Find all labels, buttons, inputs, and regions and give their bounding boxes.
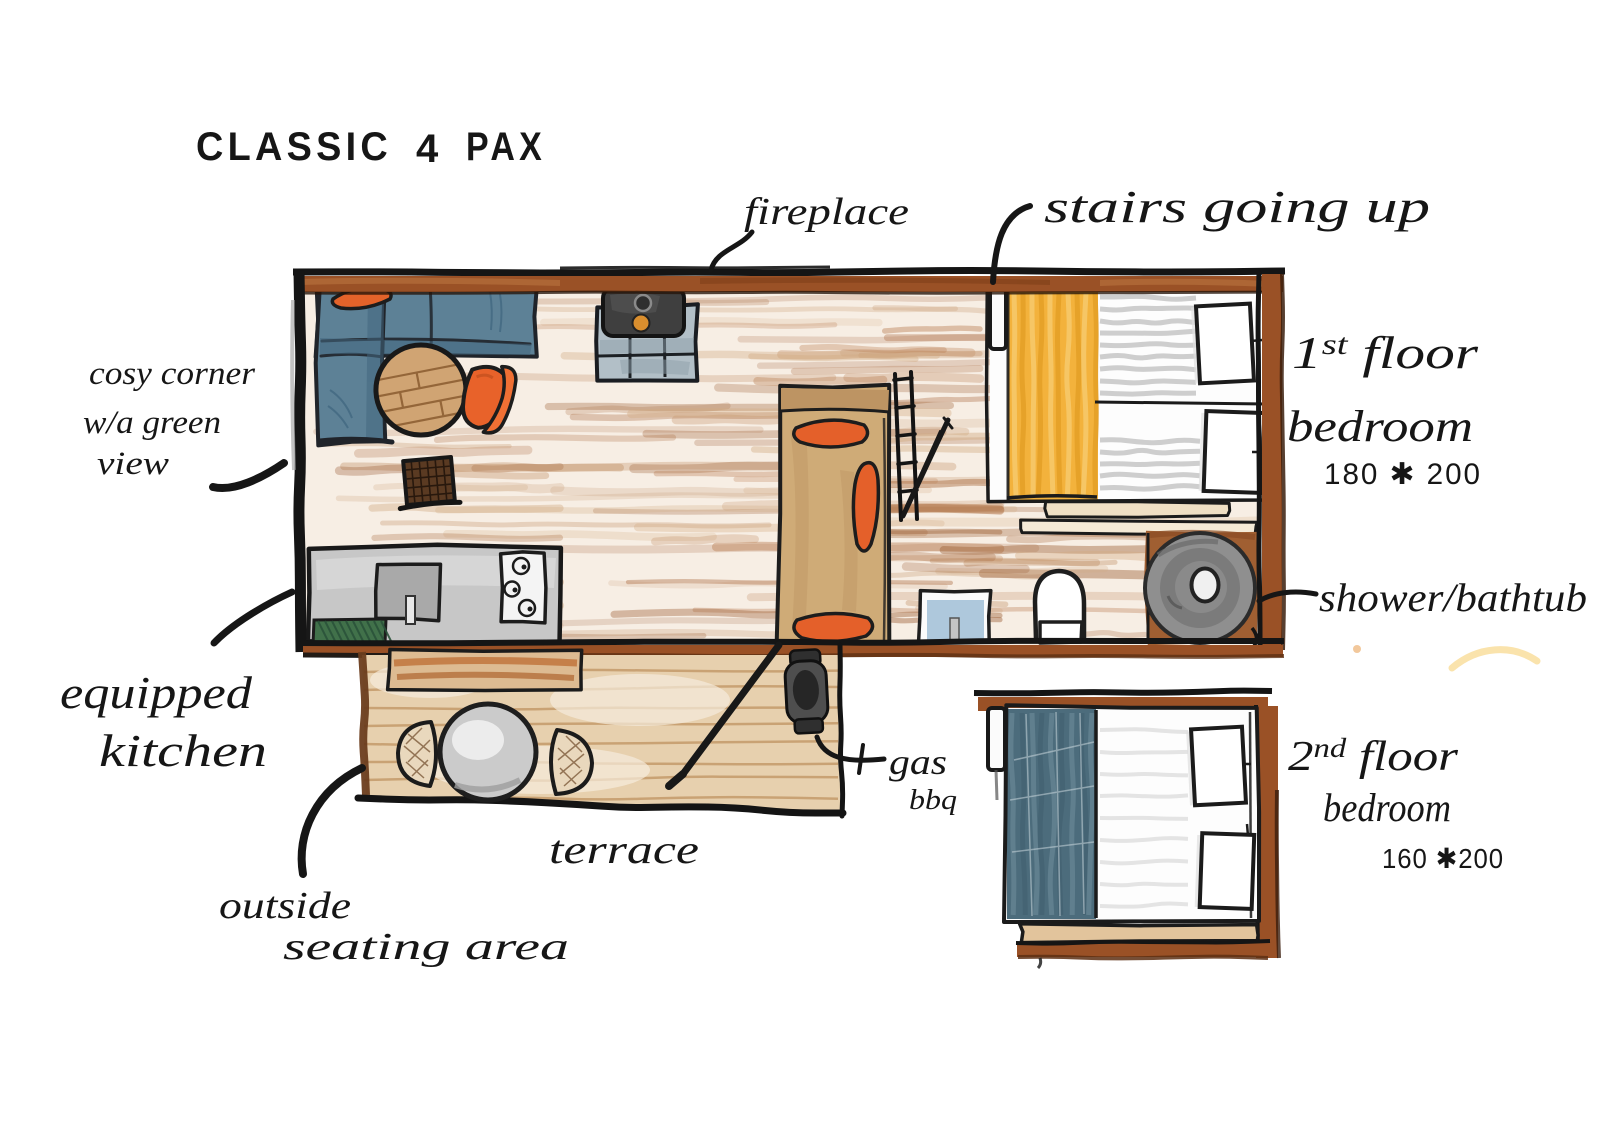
svg-text:kitchen: kitchen xyxy=(99,725,267,776)
svg-text:1st floor: 1st floor xyxy=(1292,327,1479,378)
svg-text:equipped: equipped xyxy=(60,667,253,718)
svg-text:bedroom: bedroom xyxy=(1287,402,1473,451)
svg-text:seating area: seating area xyxy=(283,926,569,968)
svg-text:view: view xyxy=(97,446,169,482)
svg-text:PAX: PAX xyxy=(466,125,546,169)
svg-text:outside: outside xyxy=(219,885,351,927)
svg-text:160 ✱200: 160 ✱200 xyxy=(1382,843,1504,874)
svg-text:180 ✱ 200: 180 ✱ 200 xyxy=(1324,458,1482,491)
svg-text:CLASSIC: CLASSIC xyxy=(196,125,392,169)
svg-text:fireplace: fireplace xyxy=(744,191,909,233)
svg-text:shower/bathtub: shower/bathtub xyxy=(1319,575,1587,620)
svg-text:terrace: terrace xyxy=(549,827,699,872)
svg-text:cosy corner: cosy corner xyxy=(89,356,255,392)
svg-text:gas: gas xyxy=(889,742,947,782)
svg-text:w/a green: w/a green xyxy=(83,405,221,441)
svg-text:bedroom: bedroom xyxy=(1323,785,1451,830)
svg-text:4: 4 xyxy=(416,127,439,171)
svg-text:bbq: bbq xyxy=(909,785,957,816)
svg-text:stairs going up: stairs going up xyxy=(1044,181,1430,232)
